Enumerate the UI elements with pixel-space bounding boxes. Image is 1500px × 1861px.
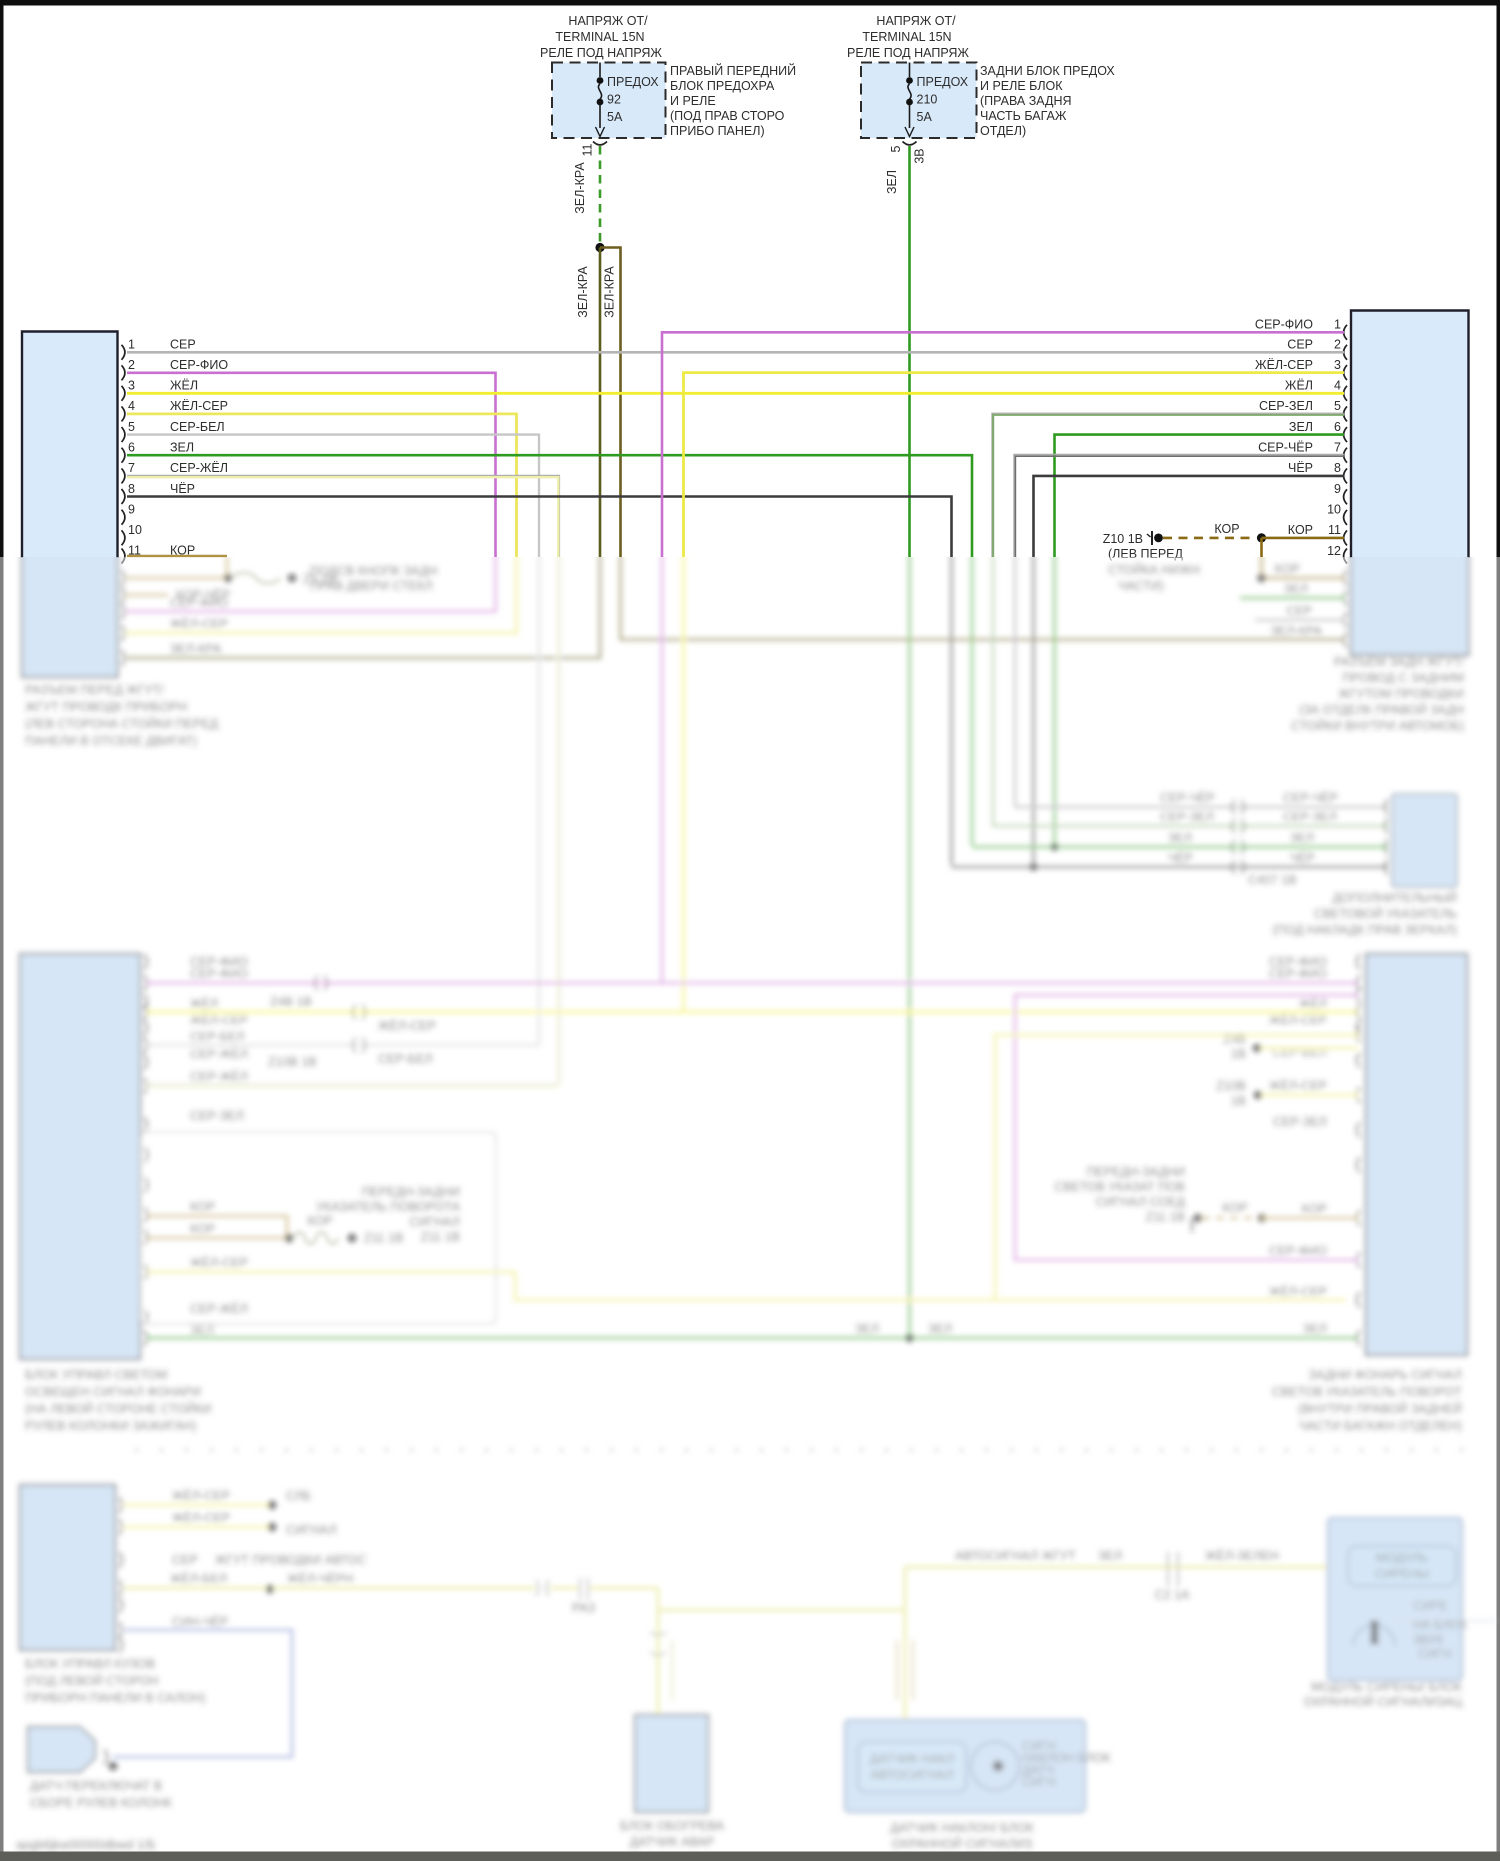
svg-text:8: 8 (1334, 461, 1341, 475)
svg-text:ЖЁЛ: ЖЁЛ (170, 379, 198, 393)
svg-text:9: 9 (1334, 482, 1341, 496)
svg-text:5А: 5А (607, 110, 623, 124)
svg-text:6: 6 (1334, 420, 1341, 434)
svg-text:12: 12 (1327, 544, 1341, 558)
svg-text:ПРЕДОХ: ПРЕДОХ (917, 75, 969, 89)
svg-text:БЛОК ПРЕДОХРА: БЛОК ПРЕДОХРА (670, 79, 775, 93)
svg-text:4: 4 (1334, 379, 1341, 393)
svg-text:2: 2 (128, 358, 135, 372)
svg-text:ЗАДНИ БЛОК ПРЕДОХ: ЗАДНИ БЛОК ПРЕДОХ (980, 64, 1115, 78)
svg-text:СЕР-ЗЕЛ: СЕР-ЗЕЛ (1259, 399, 1313, 413)
svg-text:ЗЕЛ: ЗЕЛ (170, 441, 194, 455)
svg-text:TERMINAL 15N: TERMINAL 15N (862, 30, 951, 44)
svg-text:ОТДЕЛ): ОТДЕЛ) (980, 124, 1026, 138)
svg-text:11: 11 (581, 143, 595, 156)
svg-text:ЧЁР: ЧЁР (170, 482, 195, 496)
svg-text:КОР: КОР (1214, 522, 1239, 536)
svg-text:2: 2 (1334, 338, 1341, 352)
svg-text:5: 5 (889, 145, 903, 152)
svg-text:ПРЕДОХ: ПРЕДОХ (607, 75, 659, 89)
svg-text:92: 92 (607, 93, 621, 107)
svg-text:ЧАСТЬ БАГАЖ: ЧАСТЬ БАГАЖ (980, 109, 1067, 123)
svg-text:СЕР: СЕР (170, 338, 196, 352)
svg-text:5: 5 (1334, 399, 1341, 413)
svg-text:РЕЛЕ ПОД НАПРЯЖ: РЕЛЕ ПОД НАПРЯЖ (540, 46, 662, 60)
svg-text:И РЕЛЕ: И РЕЛЕ (670, 94, 716, 108)
svg-text:210: 210 (917, 93, 938, 107)
svg-text:3: 3 (1334, 358, 1341, 372)
svg-text:1: 1 (1334, 318, 1341, 332)
svg-text:7: 7 (1334, 441, 1341, 455)
svg-text:ЖЁЛ: ЖЁЛ (1285, 379, 1313, 393)
svg-text:СЕР: СЕР (1287, 338, 1313, 352)
svg-text:ЖЁЛ-СЕР: ЖЁЛ-СЕР (170, 399, 228, 413)
svg-text:СЕР-ФИО: СЕР-ФИО (170, 358, 228, 372)
svg-text:КОР: КОР (1288, 523, 1313, 537)
svg-text:6: 6 (128, 441, 135, 455)
svg-text:РЕЛЕ ПОД НАПРЯЖ: РЕЛЕ ПОД НАПРЯЖ (847, 46, 969, 60)
svg-text:ЗЕЛ-КРА: ЗЕЛ-КРА (603, 266, 617, 318)
svg-text:5: 5 (128, 420, 135, 434)
svg-text:Z10 1В: Z10 1В (1103, 532, 1143, 546)
svg-text:1: 1 (128, 338, 135, 352)
svg-text:11: 11 (1328, 523, 1341, 537)
svg-text:СЕР-ФИО: СЕР-ФИО (1255, 318, 1313, 332)
svg-text:7: 7 (128, 461, 135, 475)
svg-text:ЧЁР: ЧЁР (1288, 461, 1313, 475)
svg-text:3: 3 (128, 379, 135, 393)
svg-text:НАПРЯЖ ОТ/: НАПРЯЖ ОТ/ (568, 14, 648, 28)
svg-text:9: 9 (128, 503, 135, 517)
svg-text:10: 10 (128, 523, 142, 537)
svg-text:СЕР-ЖЁЛ: СЕР-ЖЁЛ (170, 461, 228, 475)
svg-text:СЕР-БЕЛ: СЕР-БЕЛ (170, 420, 225, 434)
svg-text:4: 4 (128, 399, 135, 413)
svg-text:ЗЕЛ-КРА: ЗЕЛ-КРА (576, 266, 590, 318)
svg-text:СЕР-ЧЁР: СЕР-ЧЁР (1258, 441, 1313, 455)
svg-text:8: 8 (128, 482, 135, 496)
svg-text:5А: 5А (917, 110, 933, 124)
svg-text:(ПОД ПРАВ СТОРО: (ПОД ПРАВ СТОРО (670, 109, 785, 123)
svg-text:10: 10 (1327, 503, 1341, 517)
svg-text:TERMINAL 15N: TERMINAL 15N (555, 30, 644, 44)
svg-text:ПРИБО ПАНЕЛ): ПРИБО ПАНЕЛ) (670, 124, 765, 138)
svg-text:И РЕЛЕ БЛОК: И РЕЛЕ БЛОК (980, 79, 1063, 93)
svg-text:ПРАВЫЙ ПЕРЕДНИЙ: ПРАВЫЙ ПЕРЕДНИЙ (670, 63, 796, 78)
svg-text:ЗЕЛ-КРА: ЗЕЛ-КРА (573, 162, 587, 214)
svg-text:3В: 3В (913, 148, 927, 163)
svg-text:ЗЕЛ: ЗЕЛ (885, 170, 899, 194)
svg-text:(ПРАВА ЗАДНЯ: (ПРАВА ЗАДНЯ (980, 94, 1072, 108)
svg-text:ЖЁЛ-СЕР: ЖЁЛ-СЕР (1255, 358, 1313, 372)
svg-text:НАПРЯЖ ОТ/: НАПРЯЖ ОТ/ (876, 14, 956, 28)
svg-text:ЗЕЛ: ЗЕЛ (1289, 420, 1313, 434)
